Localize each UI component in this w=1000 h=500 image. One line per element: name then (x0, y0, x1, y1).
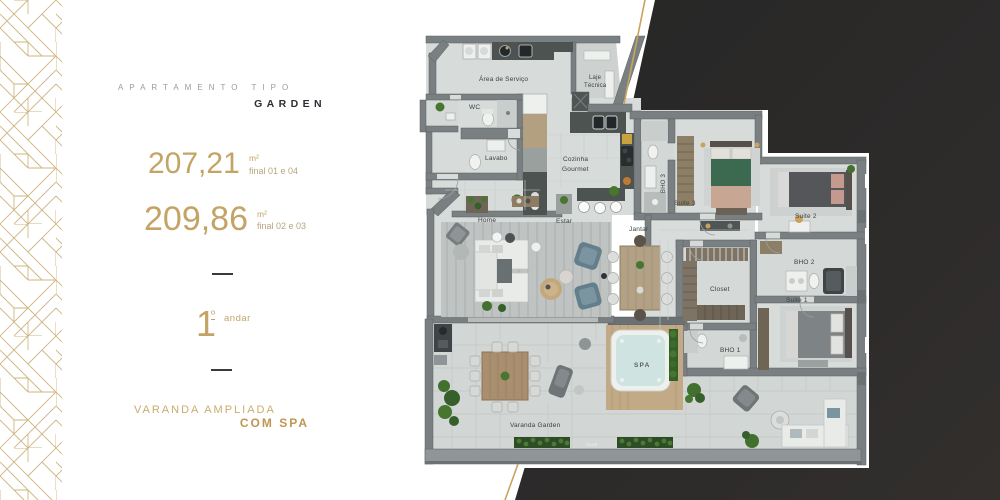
svg-text:Técnica: Técnica (584, 83, 607, 89)
svg-text:Estar: Estar (556, 218, 573, 225)
svg-text:Jantar: Jantar (629, 226, 649, 233)
svg-text:BHO 1: BHO 1 (720, 347, 741, 354)
svg-text:Área de Serviço: Área de Serviço (479, 74, 528, 83)
svg-text:Laje: Laje (589, 75, 602, 81)
svg-text:19,66: 19,66 (586, 442, 598, 447)
svg-text:SPA: SPA (634, 362, 650, 369)
svg-text:Suite 2: Suite 2 (795, 213, 817, 220)
svg-text:BHO 2: BHO 2 (794, 259, 815, 266)
svg-text:Suite 1: Suite 1 (786, 297, 808, 304)
svg-text:WC: WC (469, 104, 480, 111)
svg-text:Home: Home (478, 217, 496, 224)
svg-text:Gourmet: Gourmet (562, 166, 589, 173)
svg-text:Lavabo: Lavabo (485, 155, 508, 162)
svg-text:Varanda Garden: Varanda Garden (510, 422, 561, 429)
svg-text:BHO 3: BHO 3 (661, 174, 667, 193)
svg-text:Closet: Closet (710, 286, 730, 293)
svg-text:Cozinha: Cozinha (563, 156, 588, 163)
svg-text:Suite 3: Suite 3 (674, 200, 696, 207)
